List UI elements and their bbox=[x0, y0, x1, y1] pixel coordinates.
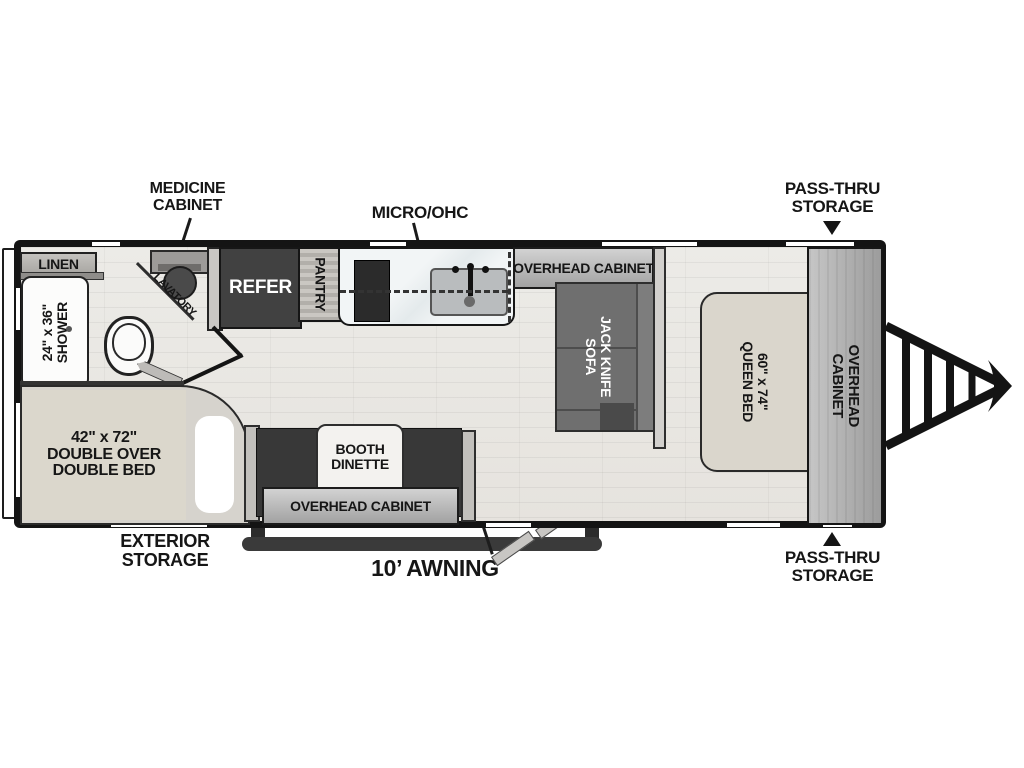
callout-line: 10’ AWNING bbox=[371, 555, 499, 581]
double-bed-label-line: DOUBLE BED bbox=[53, 462, 156, 479]
kitchen-counter bbox=[338, 247, 515, 326]
queen-bed-label: 60" x 74" QUEEN BED bbox=[741, 342, 770, 423]
double-bed-label-line: DOUBLE OVER bbox=[47, 446, 161, 463]
hitch-frame-icon bbox=[882, 300, 1014, 472]
trailer-body: LINEN 24" x 36" SHOWER LAVATORY REFER PA… bbox=[14, 240, 886, 528]
callout-line: PASS-THRU bbox=[785, 179, 880, 198]
window bbox=[786, 242, 854, 246]
kitchen-overhead-cabinet-label: OVERHEAD CABINET bbox=[513, 261, 654, 276]
pass-thru-storage-bottom-callout: PASS-THRU STORAGE bbox=[770, 549, 895, 585]
window bbox=[16, 288, 20, 330]
front-overhead-cabinet-line: CABINET bbox=[829, 345, 845, 428]
queen-bed-label-line: QUEEN BED bbox=[741, 342, 756, 423]
callout-line: CABINET bbox=[153, 197, 222, 214]
bunk-window-pad bbox=[195, 416, 234, 513]
window bbox=[16, 403, 20, 497]
callout-line: PASS-THRU bbox=[785, 548, 880, 567]
toilet-bowl bbox=[112, 323, 146, 361]
rv-floorplan: MEDICINE CABINET MICRO/OHC PASS-THRU STO… bbox=[0, 0, 1024, 768]
entry-door-opening bbox=[486, 523, 531, 527]
dinette-end-panel bbox=[461, 430, 476, 522]
front-overhead-cabinet: OVERHEAD CABINET bbox=[807, 247, 883, 525]
dinette-overhead-cabinet-label: OVERHEAD CABINET bbox=[290, 499, 431, 514]
sink-drain bbox=[464, 296, 475, 307]
arrow-up-icon bbox=[823, 532, 841, 546]
dinette-overhead-cabinet: OVERHEAD CABINET bbox=[262, 487, 459, 525]
pantry: PANTRY bbox=[298, 247, 342, 322]
awning-bar bbox=[242, 537, 602, 551]
linen-label: LINEN bbox=[38, 257, 79, 272]
shower-drain bbox=[66, 326, 72, 332]
callout-line: STORAGE bbox=[122, 550, 209, 570]
callout-line: STORAGE bbox=[792, 566, 874, 585]
refer-label: REFER bbox=[229, 278, 292, 298]
window bbox=[602, 242, 697, 246]
refrigerator: REFER bbox=[219, 247, 302, 329]
double-bed-label: 42" x 72" DOUBLE OVER DOUBLE BED bbox=[47, 430, 161, 480]
arrow-down-icon bbox=[823, 221, 841, 235]
booth-dinette-line: BOOTH bbox=[335, 441, 384, 457]
sofa-bed-partition bbox=[653, 247, 666, 449]
counter-extension-dashed-line bbox=[508, 252, 511, 322]
sofa-label-line: JACK KNIFE bbox=[599, 316, 614, 397]
pantry-label: PANTRY bbox=[313, 257, 328, 311]
sofa-footrest bbox=[600, 403, 634, 430]
sofa-label: JACK KNIFE SOFA bbox=[584, 316, 613, 397]
faucet-knob-icon bbox=[482, 266, 489, 273]
front-overhead-cabinet-label: OVERHEAD CABINET bbox=[829, 345, 861, 428]
window bbox=[727, 523, 780, 527]
sofa-label-line: SOFA bbox=[584, 316, 599, 397]
medicine-cabinet-callout: MEDICINE CABINET bbox=[120, 181, 255, 215]
queen-bed: 60" x 74" QUEEN BED bbox=[700, 292, 811, 472]
queen-bed-label-line: 60" x 74" bbox=[755, 342, 770, 423]
callout-line: STORAGE bbox=[792, 197, 874, 216]
jack-knife-sofa: JACK KNIFE SOFA bbox=[555, 282, 657, 432]
callout-line: MICRO/OHC bbox=[372, 203, 468, 222]
booth-dinette-label: BOOTH DINETTE bbox=[318, 442, 402, 471]
pass-thru-storage-top-callout: PASS-THRU STORAGE bbox=[770, 180, 895, 216]
double-bed-platform: 42" x 72" DOUBLE OVER DOUBLE BED bbox=[20, 385, 250, 525]
window bbox=[92, 242, 120, 246]
shower: 24" x 36" SHOWER bbox=[21, 276, 89, 389]
front-overhead-cabinet-line: OVERHEAD bbox=[845, 345, 861, 428]
booth-dinette-line: DINETTE bbox=[331, 456, 389, 472]
double-bed-label-line: 42" x 72" bbox=[71, 429, 137, 446]
double-bed-mattress: 42" x 72" DOUBLE OVER DOUBLE BED bbox=[22, 390, 186, 520]
callout-line: MEDICINE bbox=[150, 180, 226, 197]
counter-extension-dashed-line bbox=[340, 290, 508, 293]
shower-label-line: 24" x 36" bbox=[40, 302, 55, 363]
shower-label: 24" x 36" SHOWER bbox=[40, 302, 69, 363]
faucet-knob-icon bbox=[452, 266, 459, 273]
exterior-storage-callout: EXTERIOR STORAGE bbox=[100, 532, 230, 570]
window bbox=[370, 242, 406, 246]
micro-ohc-callout: MICRO/OHC bbox=[355, 204, 485, 222]
callout-line: EXTERIOR bbox=[120, 531, 210, 551]
shower-label-line: SHOWER bbox=[55, 302, 70, 363]
